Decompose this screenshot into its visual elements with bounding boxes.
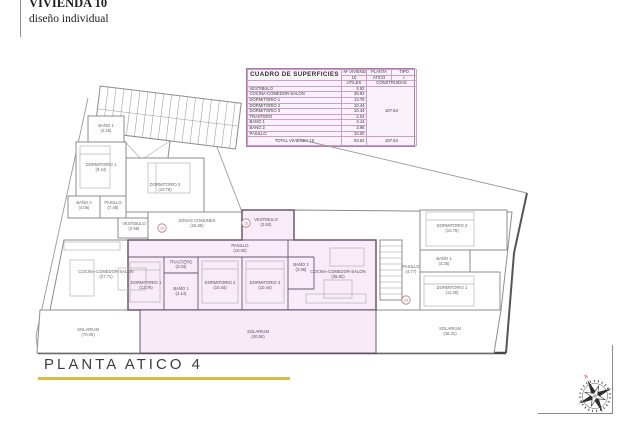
room-area: (4.05) xyxy=(79,205,91,210)
room-area: (7.48) xyxy=(108,205,120,210)
room-dormitorio1-right xyxy=(420,272,500,310)
title-underline xyxy=(38,377,290,380)
room-area: (3.96) xyxy=(296,267,308,272)
room-area: (40.50) xyxy=(251,334,265,339)
room-area: (4.35) xyxy=(439,261,451,266)
room-area: (70.00) xyxy=(81,332,95,337)
sheet-title: PLANTA ATICO 4 xyxy=(44,356,203,373)
drawing-sheet: VIVIENDA 10 diseño individual CUADRO DE … xyxy=(0,0,630,423)
door-number: 16 xyxy=(244,222,248,226)
corridor-area: (25.56) xyxy=(190,223,204,228)
room-dormitorio2-right xyxy=(420,210,507,250)
room-area: (2.92) xyxy=(261,222,273,227)
door-number: 15 xyxy=(160,227,164,231)
solarium-right xyxy=(376,310,501,353)
room-area: (2.04) xyxy=(176,264,188,269)
room-area: (35.92) xyxy=(331,274,345,279)
room-area: (4.14) xyxy=(176,291,188,296)
room-area: (2.98) xyxy=(129,226,141,231)
room-area: (10.44) xyxy=(213,285,227,290)
door-number: 14 xyxy=(404,299,408,303)
room-area: (4.16) xyxy=(101,128,113,133)
room-area: (13.76) xyxy=(139,285,153,290)
room-area: (10.78) xyxy=(158,187,172,192)
room-area: (9.44) xyxy=(96,167,108,172)
room-area: (10.75) xyxy=(445,228,459,233)
room-area: (27.71) xyxy=(99,274,113,279)
room-area: (4.77) xyxy=(406,269,418,274)
room-area: (11.36) xyxy=(446,290,460,295)
room-area: (10.44) xyxy=(258,285,272,290)
room-area: (38.31) xyxy=(443,331,457,336)
room-area: (10.00) xyxy=(233,248,247,253)
compass-rose: N xyxy=(569,367,619,420)
north-label: N xyxy=(582,374,589,382)
